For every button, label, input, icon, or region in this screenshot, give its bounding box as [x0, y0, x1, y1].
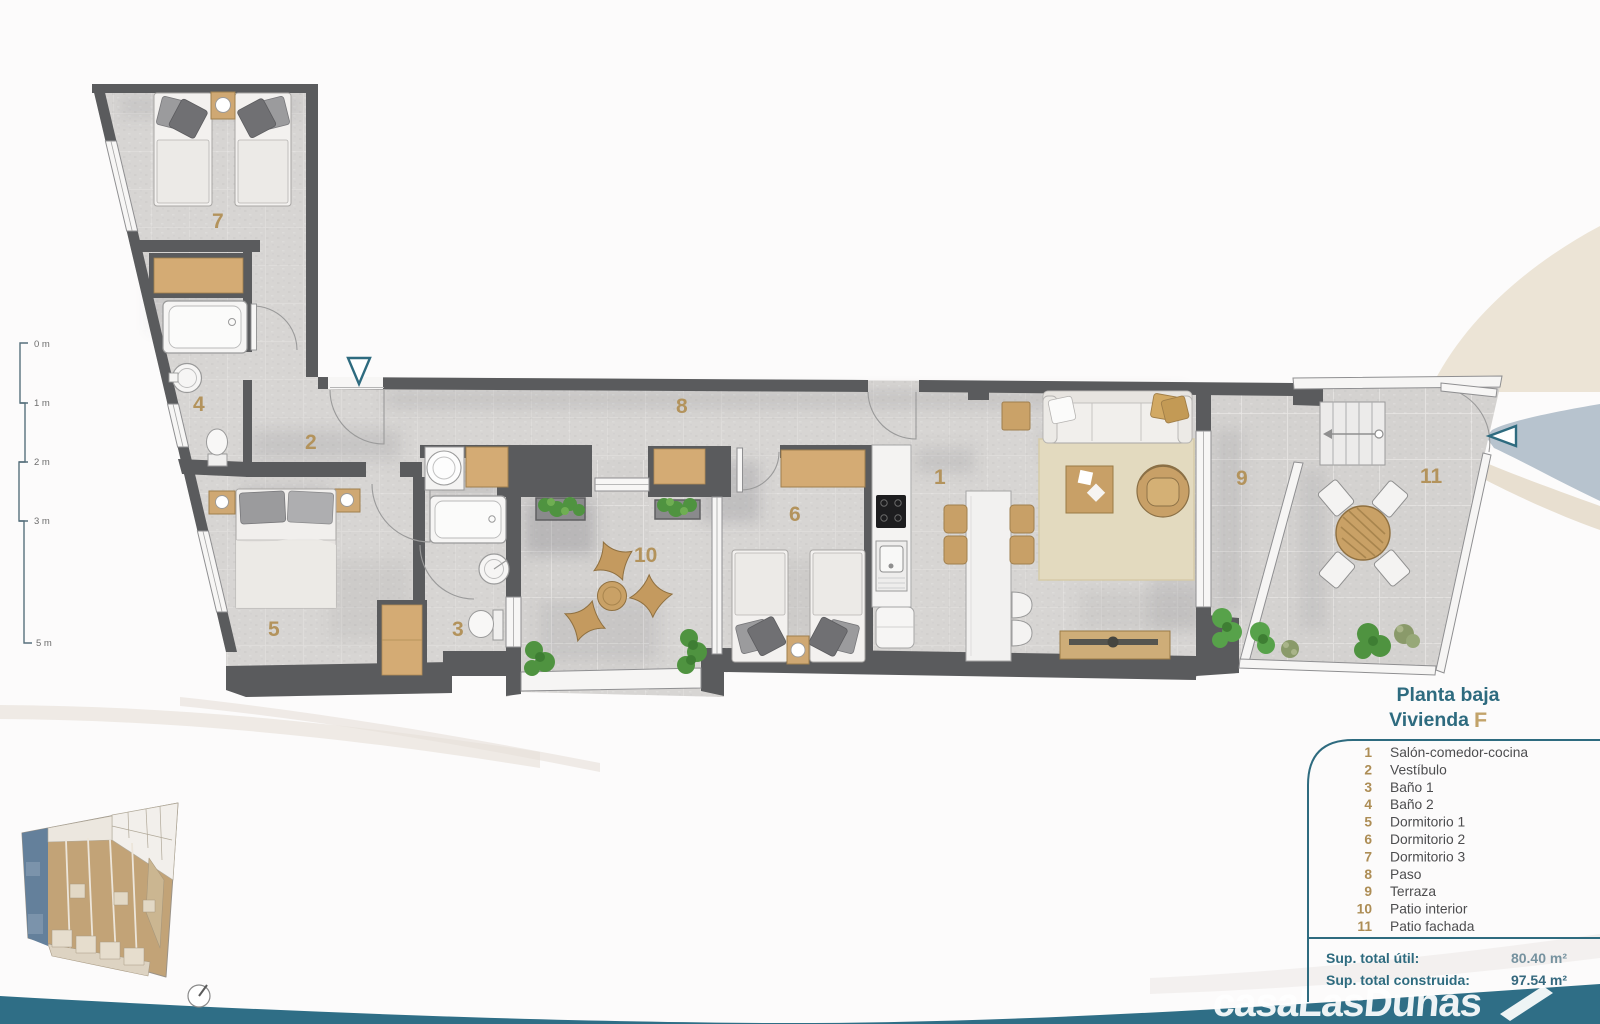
svg-text:5: 5 — [1364, 815, 1372, 830]
svg-text:Salón-comedor-cocina: Salón-comedor-cocina — [1390, 745, 1528, 760]
svg-text:8: 8 — [676, 395, 688, 418]
svg-text:6: 6 — [789, 503, 801, 526]
svg-text:4: 4 — [1364, 797, 1372, 812]
svg-text:2: 2 — [305, 431, 317, 454]
svg-text:5: 5 — [268, 618, 280, 641]
svg-text:2: 2 — [1364, 762, 1372, 777]
svg-text:Sup. total útil:: Sup. total útil: — [1326, 950, 1419, 966]
svg-text:3: 3 — [452, 618, 464, 641]
svg-text:Patio fachada: Patio fachada — [1390, 919, 1475, 934]
svg-text:11: 11 — [1357, 919, 1372, 934]
svg-text:Dormitorio 3: Dormitorio 3 — [1390, 849, 1465, 864]
svg-text:1 m: 1 m — [34, 398, 50, 409]
svg-text:9: 9 — [1364, 884, 1372, 899]
svg-text:10: 10 — [1357, 902, 1373, 917]
svg-text:Terraza: Terraza — [1390, 884, 1436, 899]
svg-text:11: 11 — [1420, 465, 1443, 488]
svg-text:3 m: 3 m — [34, 516, 50, 527]
svg-text:9: 9 — [1236, 467, 1248, 490]
svg-text:Baño 1: Baño 1 — [1390, 780, 1434, 795]
svg-text:7: 7 — [1364, 849, 1372, 864]
svg-text:Planta baja: Planta baja — [1397, 684, 1500, 706]
svg-text:1: 1 — [934, 466, 946, 489]
svg-text:Vestíbulo: Vestíbulo — [1390, 762, 1447, 777]
svg-text:6: 6 — [1364, 832, 1372, 847]
svg-text:F: F — [1474, 708, 1487, 732]
svg-text:Vivienda: Vivienda — [1389, 709, 1469, 731]
svg-text:80.40 m²: 80.40 m² — [1511, 950, 1567, 966]
svg-text:8: 8 — [1364, 867, 1372, 882]
svg-text:5 m: 5 m — [36, 638, 52, 649]
svg-text:Dormitorio 1: Dormitorio 1 — [1390, 815, 1465, 830]
svg-text:3: 3 — [1364, 780, 1372, 795]
svg-text:7: 7 — [212, 210, 224, 233]
svg-text:1: 1 — [1364, 745, 1372, 760]
svg-text:Patio interior: Patio interior — [1390, 902, 1468, 917]
svg-text:Dormitorio 2: Dormitorio 2 — [1390, 832, 1465, 847]
svg-text:10: 10 — [634, 544, 657, 567]
svg-text:97.54 m²: 97.54 m² — [1511, 972, 1567, 988]
svg-text:0 m: 0 m — [34, 339, 50, 350]
svg-text:Paso: Paso — [1390, 867, 1422, 882]
svg-text:2 m: 2 m — [34, 457, 50, 468]
svg-text:4: 4 — [193, 393, 205, 416]
svg-text:Sup. total construida:: Sup. total construida: — [1326, 972, 1470, 988]
svg-text:Baño 2: Baño 2 — [1390, 797, 1434, 812]
